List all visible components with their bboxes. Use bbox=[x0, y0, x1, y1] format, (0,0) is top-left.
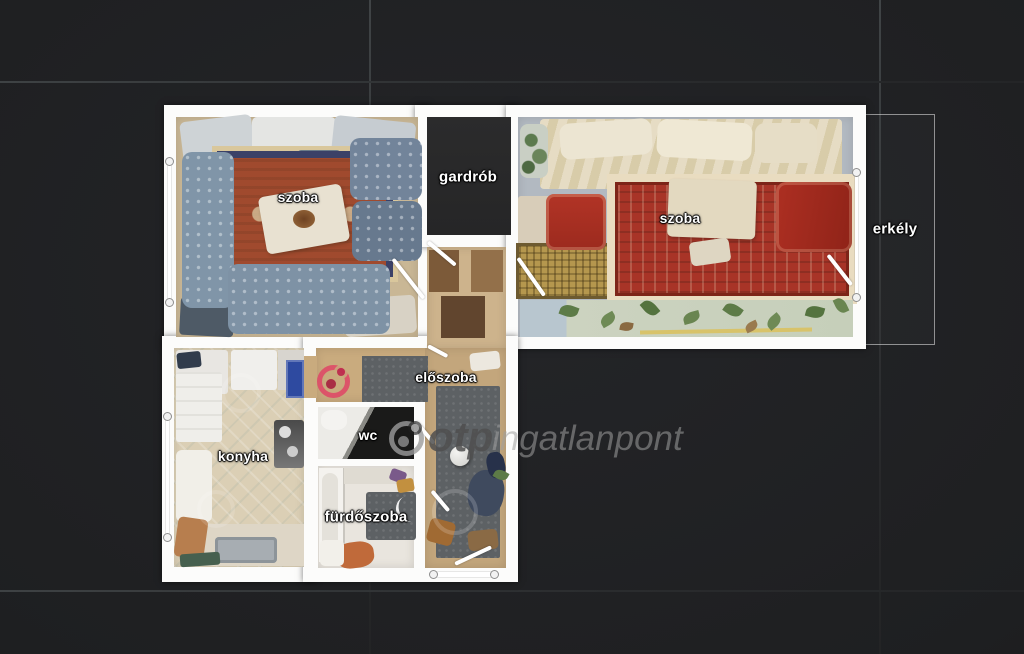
faint-logo-ring bbox=[221, 373, 261, 413]
pillow bbox=[656, 119, 753, 162]
window-node bbox=[852, 168, 861, 177]
window-node bbox=[163, 412, 172, 421]
room-label-wc: wc bbox=[358, 427, 377, 443]
room-label-furdoszoba: fürdőszoba bbox=[325, 509, 408, 526]
otp-logo-icon bbox=[389, 421, 424, 456]
faint-logo-ring bbox=[197, 490, 235, 528]
watermark-text-ingatlanpont: ingatlanpont bbox=[492, 419, 683, 459]
toilet bbox=[321, 410, 347, 430]
background-grid-line bbox=[0, 590, 1024, 592]
red-armchair bbox=[546, 194, 606, 250]
background-grid-line bbox=[0, 81, 1024, 83]
pillow bbox=[559, 118, 653, 160]
stove-pot bbox=[279, 426, 291, 438]
window-node bbox=[163, 533, 172, 542]
room-label-szoba-2: szoba bbox=[660, 210, 701, 226]
sink bbox=[215, 537, 277, 563]
room-label-konyha: konyha bbox=[218, 448, 268, 464]
window-marker bbox=[855, 172, 858, 297]
watermark-text-otp: otp bbox=[428, 413, 493, 461]
door-opening bbox=[304, 356, 317, 398]
window-marker bbox=[168, 161, 171, 302]
floorplan-canvas: otp ingatlanpont szoba gardrób szoba erk… bbox=[0, 0, 1024, 654]
otp-logo-icon-red bbox=[317, 365, 350, 398]
sink bbox=[320, 540, 344, 566]
window-node bbox=[165, 298, 174, 307]
room-label-erkely: erkély bbox=[873, 221, 918, 238]
dark-item bbox=[176, 351, 202, 369]
doormat bbox=[471, 250, 503, 292]
room-label-szoba-1: szoba bbox=[278, 189, 319, 205]
table-bowl bbox=[293, 210, 315, 228]
entrance-door-node bbox=[429, 570, 438, 579]
entrance-door-node bbox=[490, 570, 499, 579]
armchair-right bbox=[350, 138, 422, 200]
sofa-left bbox=[182, 152, 234, 308]
window-node bbox=[852, 293, 861, 302]
red-armchair bbox=[776, 182, 852, 252]
room-label-gardrob: gardrób bbox=[439, 169, 497, 186]
stove-pot bbox=[287, 446, 298, 457]
pillow bbox=[755, 123, 817, 163]
sofa-bottom bbox=[228, 264, 390, 334]
entrance-door-marker bbox=[436, 572, 494, 577]
window-marker bbox=[166, 416, 169, 538]
ottoman bbox=[667, 178, 757, 239]
doormat bbox=[441, 296, 485, 338]
welcome-mat bbox=[286, 360, 304, 398]
plant bbox=[520, 124, 548, 178]
gold-rug bbox=[516, 243, 612, 299]
window-node bbox=[165, 157, 174, 166]
armchair-right bbox=[352, 201, 422, 261]
fridge bbox=[176, 372, 222, 442]
clutter bbox=[180, 552, 221, 568]
room-label-eloszoba: előszoba bbox=[415, 369, 477, 385]
